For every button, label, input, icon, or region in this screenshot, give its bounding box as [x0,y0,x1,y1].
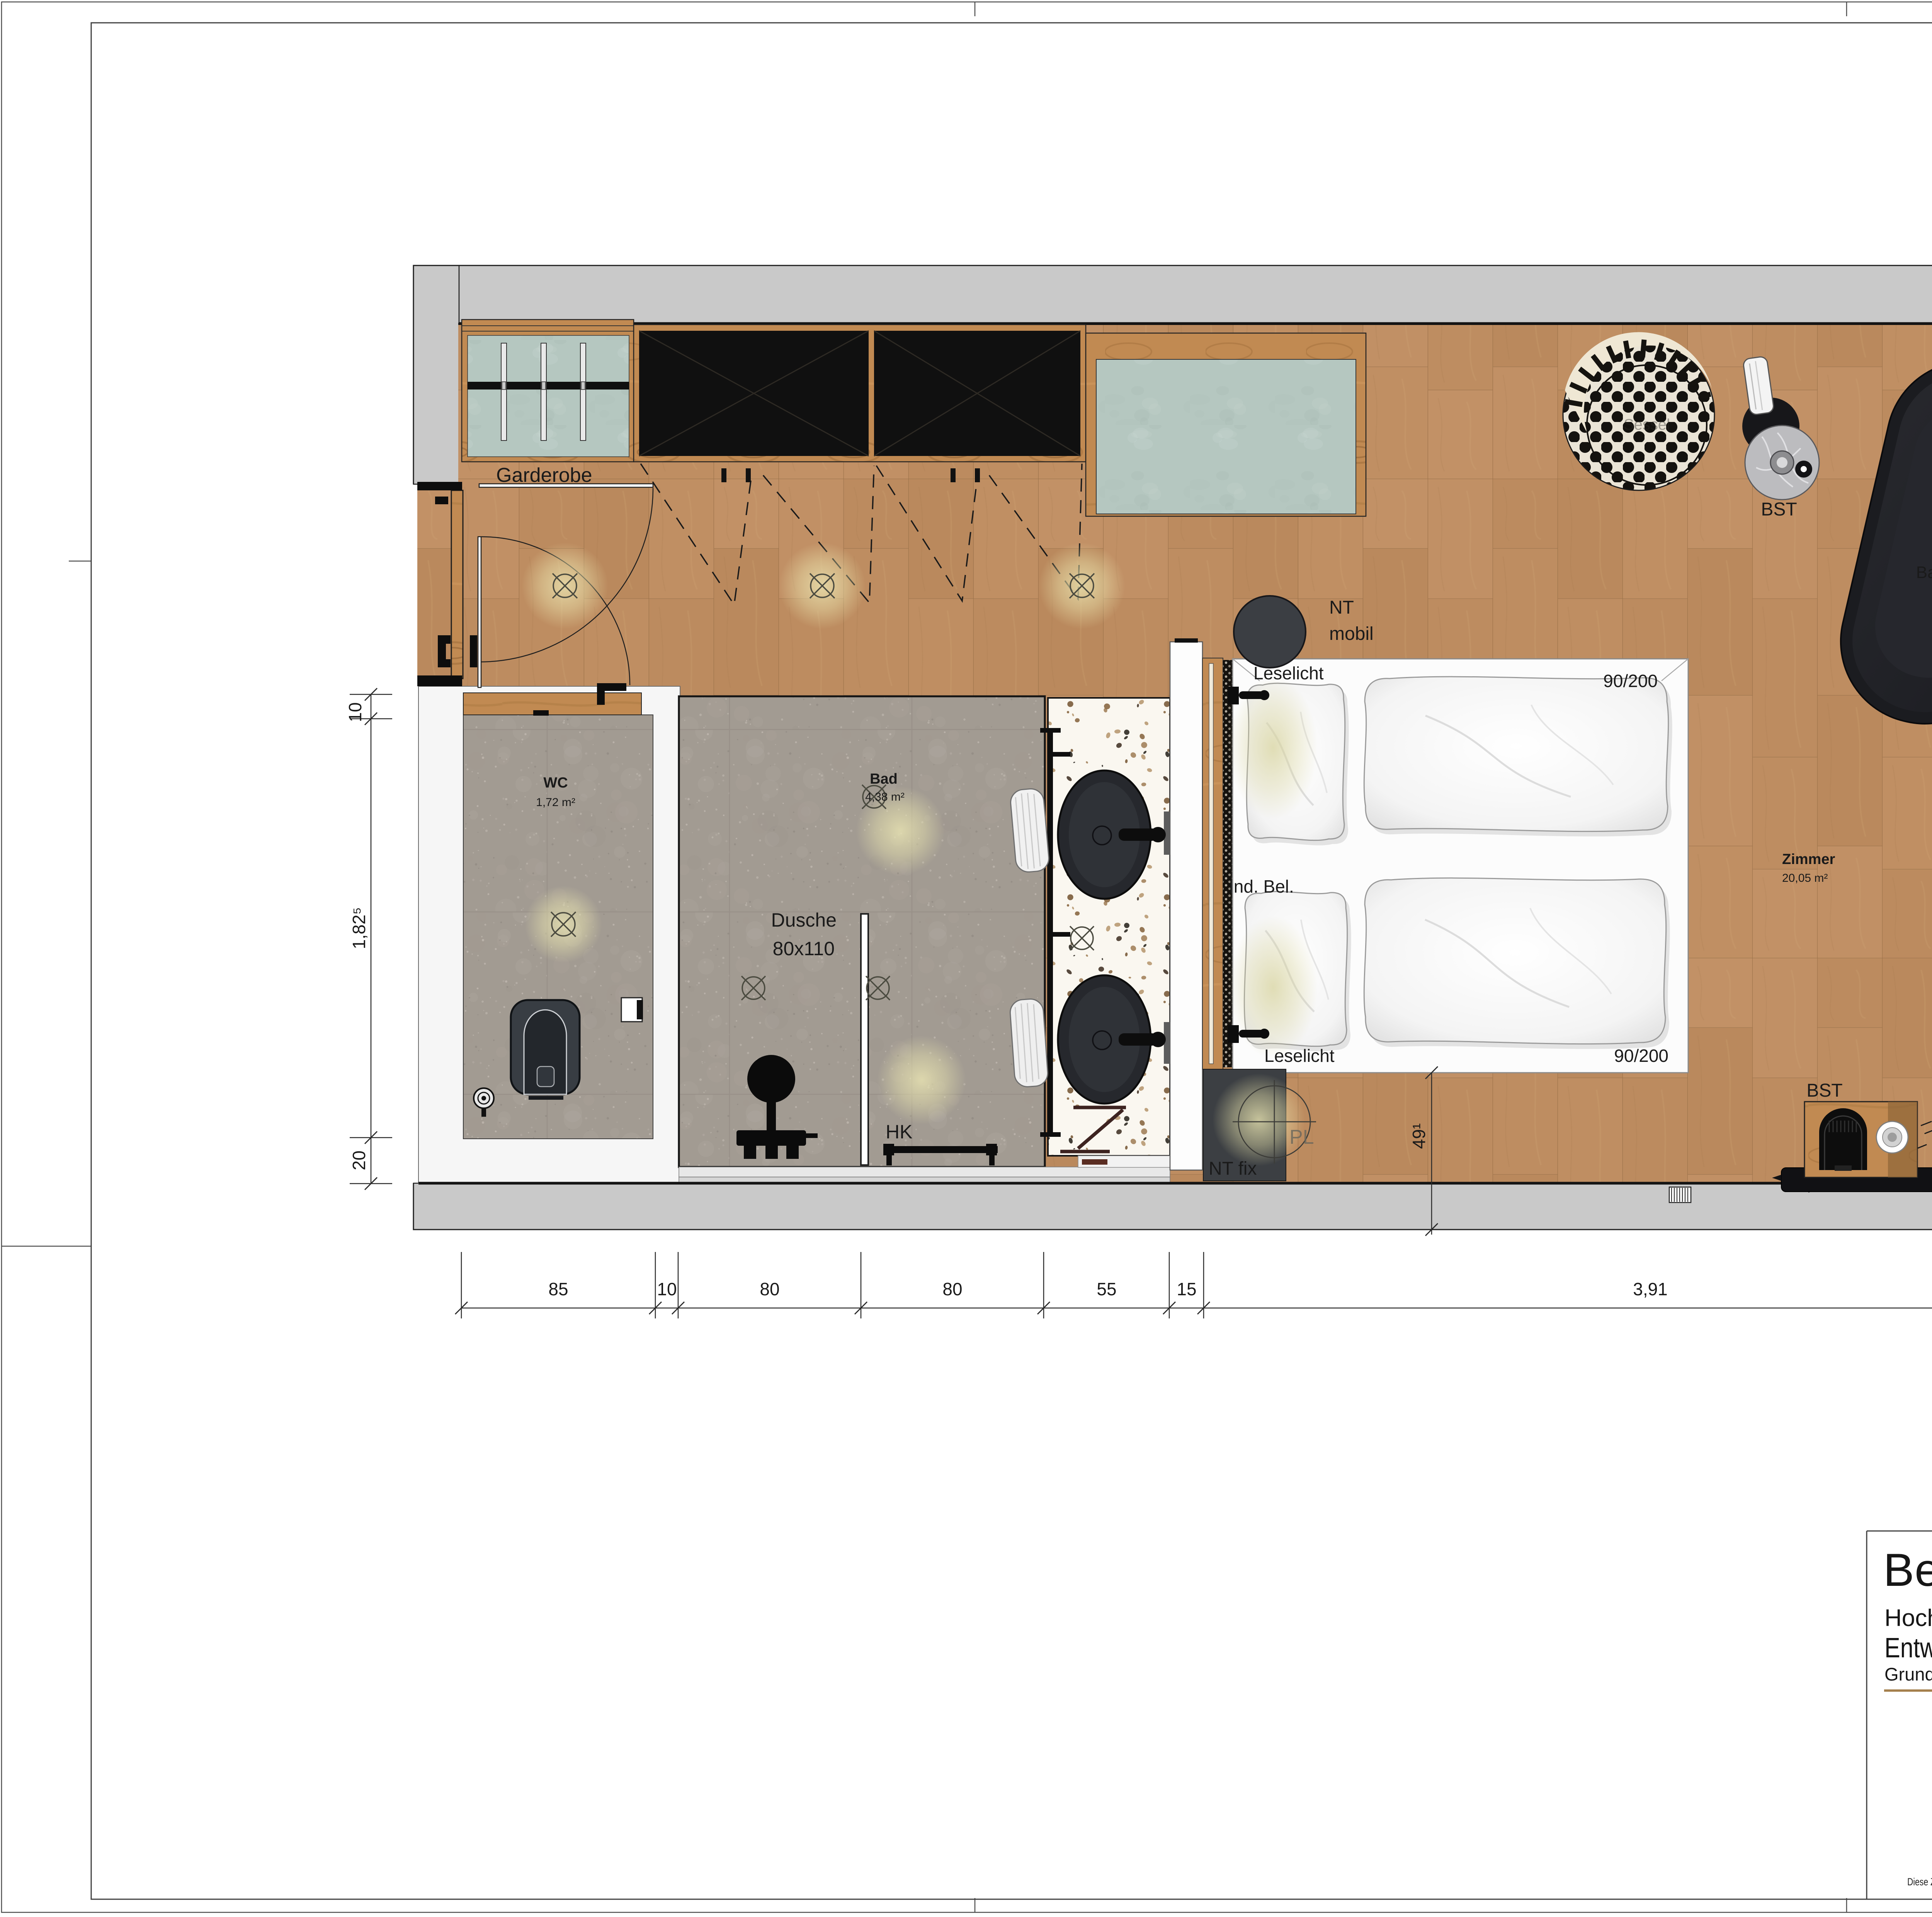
svg-text:Garderobe: Garderobe [496,464,592,486]
svg-text:85: 85 [548,1279,568,1299]
svg-text:10: 10 [657,1279,677,1299]
svg-text:20,05 m²: 20,05 m² [1782,872,1828,885]
svg-text:80: 80 [942,1279,962,1299]
svg-text:NT: NT [1329,597,1354,618]
svg-text:Entwurf Standardzimmer, Grundr: Entwurf Standardzimmer, Grundriss [1884,1633,1932,1664]
svg-text:Zimmer: Zimmer [1782,851,1835,867]
svg-text:1,72 m²: 1,72 m² [536,796,575,809]
svg-text:Diese Zeichnung ist das Eigent: Diese Zeichnung ist das Eigentum der Fir… [1907,1876,1932,1888]
svg-text:10: 10 [345,702,365,722]
svg-text:BST: BST [1761,499,1797,520]
svg-text:Ind. Bel.: Ind. Bel. [1229,876,1294,896]
svg-text:Hochfügen: Hochfügen [1884,1605,1932,1631]
svg-text:Sessel: Sessel [1624,416,1670,433]
svg-text:1,82⁵: 1,82⁵ [349,907,369,949]
svg-text:Leselicht: Leselicht [1264,1046,1335,1066]
svg-text:20: 20 [349,1150,369,1170]
svg-text:Grundriss 1:20: Grundriss 1:20 [1884,1664,1932,1684]
svg-text:80x110: 80x110 [773,938,835,959]
svg-text:4,38 m²: 4,38 m² [865,791,905,803]
svg-text:3,91: 3,91 [1633,1279,1668,1299]
svg-text:90/200: 90/200 [1614,1046,1668,1066]
svg-text:Dusche: Dusche [771,909,837,931]
svg-text:HK: HK [886,1121,912,1143]
svg-text:15: 15 [1177,1279,1196,1299]
svg-text:WC: WC [543,775,568,791]
svg-text:Bad: Bad [870,771,898,787]
svg-text:49¹: 49¹ [1409,1123,1429,1149]
svg-text:80: 80 [760,1279,779,1299]
svg-text:PL: PL [1289,1126,1314,1148]
svg-text:Badewanne: Badewanne [1916,563,1932,582]
svg-text:NT fix: NT fix [1209,1158,1257,1179]
svg-text:90/200: 90/200 [1603,671,1658,691]
svg-text:BST: BST [1806,1080,1842,1101]
svg-text:mobil: mobil [1329,624,1374,644]
svg-text:55: 55 [1097,1279,1116,1299]
svg-text:Berghotel: Berghotel [1883,1544,1932,1596]
svg-text:Leselicht: Leselicht [1253,663,1324,683]
